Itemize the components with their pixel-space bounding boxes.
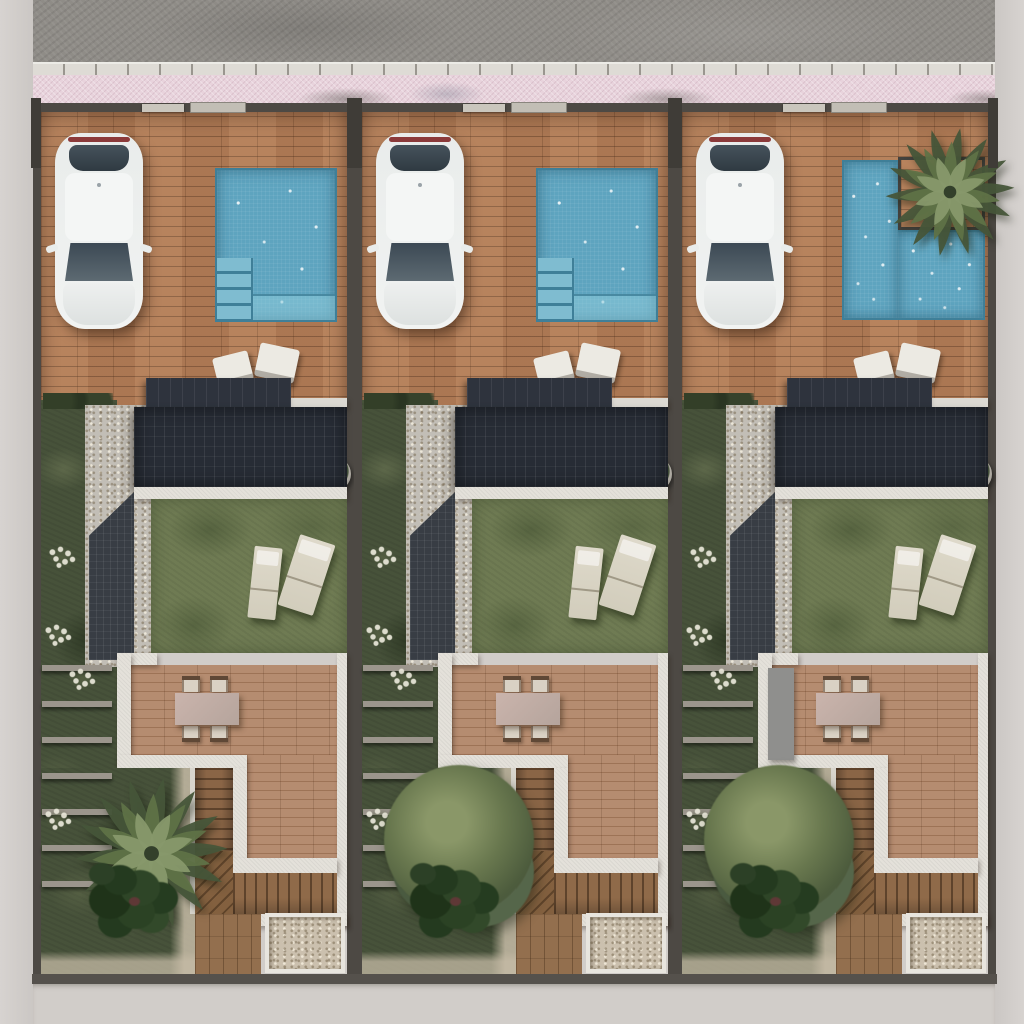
lower-deck bbox=[516, 914, 582, 974]
white-wall bbox=[554, 858, 658, 873]
dark-foliage bbox=[410, 863, 436, 885]
car-taillight bbox=[68, 137, 130, 142]
pedestrian-gate bbox=[142, 104, 184, 112]
dining-chair bbox=[182, 676, 200, 692]
garden-step bbox=[363, 737, 433, 743]
dining-chair bbox=[182, 726, 200, 742]
dining-chair bbox=[503, 676, 521, 692]
flower-bush bbox=[43, 623, 73, 647]
asphalt-road bbox=[33, 0, 995, 62]
dining-table bbox=[816, 693, 880, 725]
garden-step bbox=[42, 737, 112, 743]
garden-step bbox=[683, 737, 753, 743]
garden-step bbox=[683, 701, 753, 707]
villa-plots-row bbox=[33, 107, 995, 974]
driveway-gate bbox=[511, 102, 567, 113]
garden-step bbox=[363, 701, 433, 707]
white-wall bbox=[438, 653, 452, 768]
dining-chair bbox=[531, 726, 549, 742]
rear-boundary-wall bbox=[32, 974, 356, 984]
dining-chair bbox=[823, 676, 841, 692]
car-taillight bbox=[389, 137, 451, 142]
rear-boundary-wall bbox=[673, 974, 997, 984]
driveway-gate bbox=[831, 102, 887, 113]
street-boundary-wall bbox=[32, 103, 356, 112]
car-windshield bbox=[386, 243, 454, 281]
driveway-gate bbox=[190, 102, 246, 113]
concrete-wall-element bbox=[768, 668, 794, 760]
dining-chair bbox=[531, 676, 549, 692]
white-wall bbox=[117, 653, 131, 768]
white-wall bbox=[978, 653, 988, 926]
parked-car bbox=[696, 133, 784, 329]
white-wall bbox=[117, 755, 247, 768]
road-curb bbox=[33, 62, 995, 75]
flower-bush bbox=[688, 545, 718, 569]
solar-panel-roof bbox=[775, 407, 988, 487]
boundary-post bbox=[988, 98, 998, 168]
dining-deck bbox=[452, 665, 668, 755]
upper-roof bbox=[467, 378, 612, 408]
gravel-patch bbox=[906, 913, 986, 973]
lower-deck bbox=[836, 914, 902, 974]
swimming-pool-l-shaped bbox=[842, 157, 985, 320]
white-wall bbox=[658, 653, 668, 926]
pool-steps bbox=[217, 258, 253, 320]
street-boundary-wall bbox=[673, 103, 997, 112]
deck-walkway bbox=[888, 755, 988, 858]
car-windshield bbox=[706, 243, 774, 281]
dining-table bbox=[175, 693, 239, 725]
villa-plot-3 bbox=[682, 107, 988, 974]
leafy-tree-icon bbox=[384, 765, 534, 915]
palm-tree-icon bbox=[880, 122, 1020, 262]
parked-car bbox=[376, 133, 464, 329]
dining-chair bbox=[823, 726, 841, 742]
street-boundary-wall bbox=[353, 103, 677, 112]
dining-chair bbox=[503, 726, 521, 742]
car-hood bbox=[63, 283, 135, 325]
rear-boundary-wall bbox=[353, 974, 677, 984]
solar-panel-roof bbox=[455, 407, 668, 487]
flower-bush bbox=[47, 545, 77, 569]
upper-roof bbox=[146, 378, 291, 408]
staircase-lower-run bbox=[554, 873, 658, 914]
swimming-pool bbox=[215, 168, 337, 322]
staircase-lower-run bbox=[233, 873, 337, 914]
car-rear-window bbox=[390, 145, 450, 171]
car-taillight bbox=[709, 137, 771, 142]
gravel-patch bbox=[265, 913, 345, 973]
palm-tree-icon bbox=[69, 771, 234, 936]
dark-foliage bbox=[730, 863, 756, 885]
deck-walkway bbox=[247, 755, 347, 858]
rear-ground bbox=[33, 984, 995, 1024]
dark-foliage bbox=[89, 863, 115, 885]
leafy-tree-icon bbox=[704, 765, 854, 915]
boundary-post bbox=[352, 98, 362, 168]
dining-chair bbox=[210, 726, 228, 742]
pool-shallow-shelf bbox=[253, 294, 335, 320]
gravel-patch bbox=[586, 913, 666, 973]
white-wall bbox=[337, 653, 347, 926]
dining-table bbox=[496, 693, 560, 725]
car-antenna bbox=[97, 183, 101, 187]
parapet-wall bbox=[455, 487, 668, 499]
villa-plot-2 bbox=[362, 107, 668, 974]
car-antenna bbox=[738, 183, 742, 187]
garden-step bbox=[42, 701, 112, 707]
boundary-post bbox=[31, 98, 41, 168]
parapet-wall bbox=[775, 487, 988, 499]
deck-walkway bbox=[568, 755, 668, 858]
upper-roof bbox=[787, 378, 932, 408]
flower-bush bbox=[388, 667, 418, 691]
car-antenna bbox=[418, 183, 422, 187]
car-windshield bbox=[65, 243, 133, 281]
car-hood bbox=[384, 283, 456, 325]
pool-steps bbox=[538, 258, 574, 320]
pedestrian-gate bbox=[463, 104, 505, 112]
flower-bush bbox=[368, 545, 398, 569]
dining-chair bbox=[210, 676, 228, 692]
pool-shallow-shelf bbox=[574, 294, 656, 320]
dining-deck bbox=[772, 665, 988, 755]
flower-bush bbox=[67, 667, 97, 691]
solar-panel-roof bbox=[134, 407, 347, 487]
white-wall bbox=[874, 858, 978, 873]
swimming-pool bbox=[536, 168, 658, 322]
flower-bush bbox=[364, 623, 394, 647]
pedestrian-gate bbox=[783, 104, 825, 112]
parked-car bbox=[55, 133, 143, 329]
flower-bush bbox=[684, 623, 714, 647]
car-hood bbox=[704, 283, 776, 325]
dining-chair bbox=[851, 676, 869, 692]
boundary-post bbox=[672, 98, 682, 168]
staircase-lower-run bbox=[874, 873, 978, 914]
villa-plot-1 bbox=[41, 107, 347, 974]
site-plan-render bbox=[0, 0, 1024, 1024]
car-rear-window bbox=[69, 145, 129, 171]
dining-deck bbox=[131, 665, 347, 755]
white-wall bbox=[233, 858, 337, 873]
parapet-wall bbox=[134, 487, 347, 499]
dining-chair bbox=[851, 726, 869, 742]
car-rear-window bbox=[710, 145, 770, 171]
left-ground-margin bbox=[0, 0, 33, 1024]
flower-bush bbox=[708, 667, 738, 691]
